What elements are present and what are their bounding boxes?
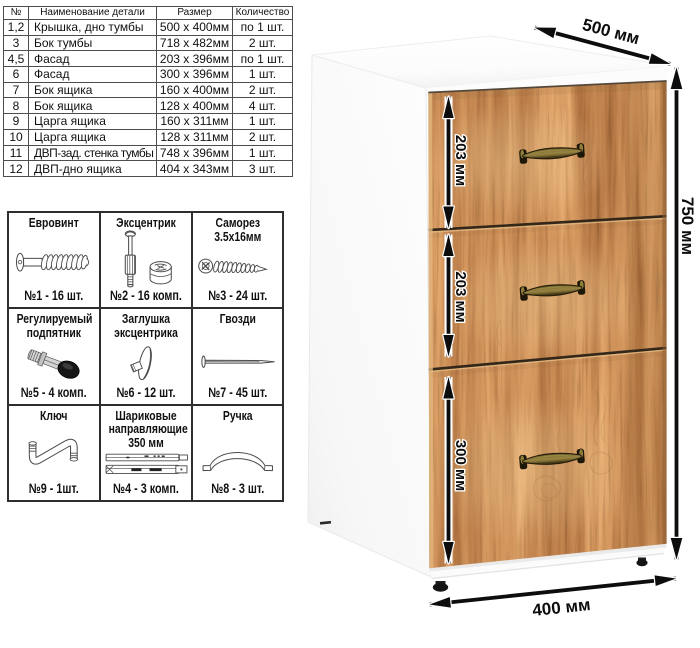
svg-text:400 мм: 400 мм [531, 595, 591, 620]
svg-text:203 мм: 203 мм [452, 271, 469, 322]
svg-text:300 мм: 300 мм [452, 440, 469, 491]
svg-text:203 мм: 203 мм [452, 135, 469, 186]
svg-text:750 мм: 750 мм [678, 197, 697, 255]
